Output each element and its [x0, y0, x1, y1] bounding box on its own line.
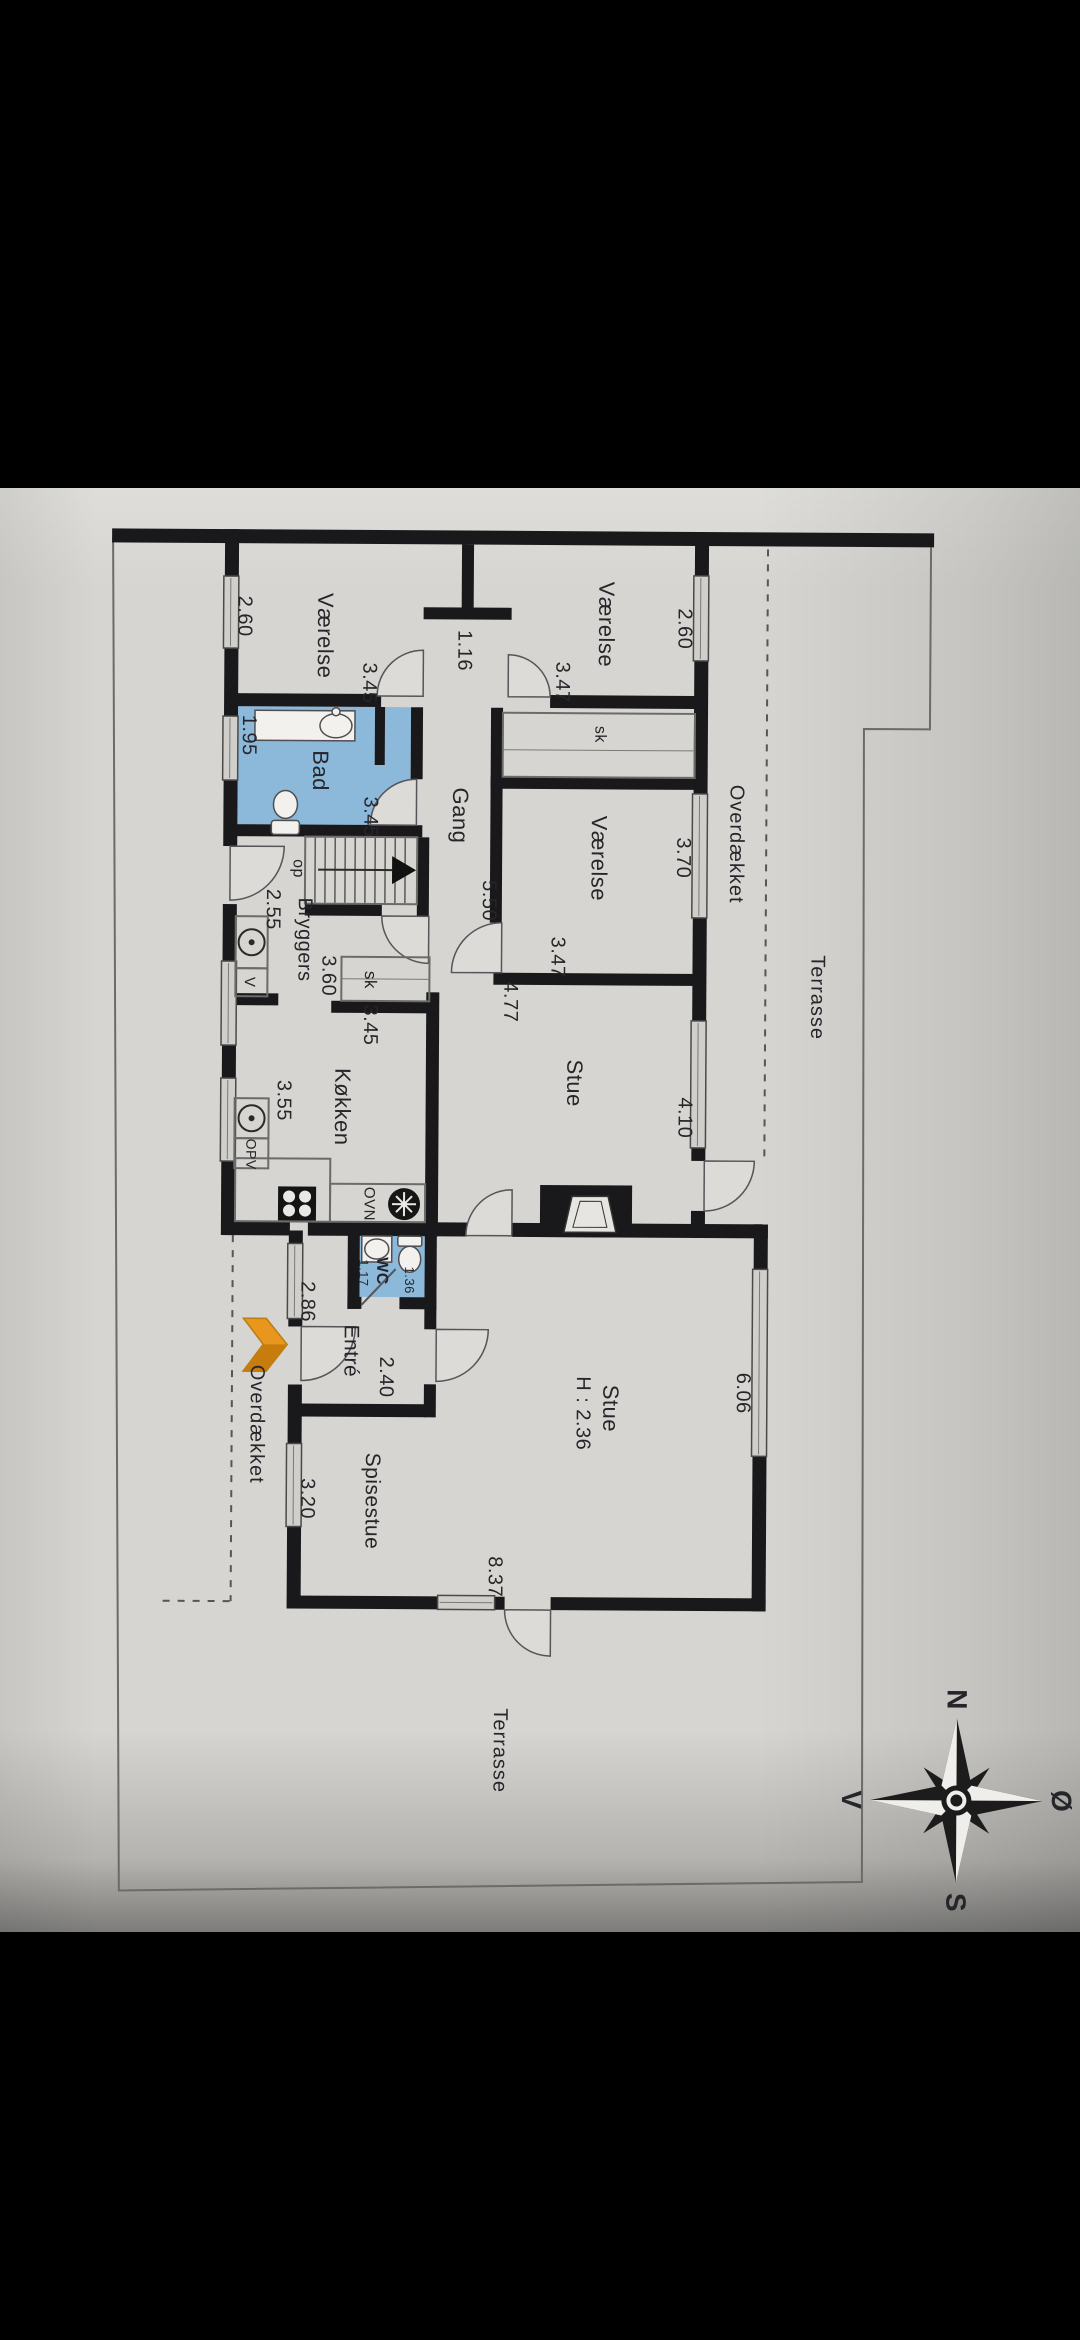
- dim-label: 6.06: [732, 1373, 754, 1414]
- door-terrasse: [504, 1610, 550, 1656]
- room-label-bryggers: Bryggers: [293, 897, 316, 981]
- floorplan-tilt-wrapper: Værelse 2.60 3.45 1.16 Værelse 3.47 2.60…: [0, 485, 1080, 1936]
- dim-label: 3.47: [551, 662, 573, 703]
- bottom-letterbox-bar: [0, 1932, 1080, 2340]
- room-label-vaerelse-top-middle: Værelse: [594, 582, 620, 668]
- dim-label: 5.50: [478, 880, 500, 921]
- door-vaerelse-middle: [508, 655, 550, 697]
- wc-sink: [365, 1239, 389, 1259]
- dim-label: 2.60: [233, 596, 255, 637]
- door-stue-divider: [466, 1190, 512, 1236]
- area-label-overdaekket-east: Overdækket: [725, 785, 748, 904]
- room-label-koekken: Køkken: [330, 1068, 355, 1146]
- room-label-stue-lower: Stue: [598, 1385, 623, 1432]
- door-entre-stue: [436, 1329, 488, 1381]
- dim-label: 3.20: [296, 1478, 318, 1519]
- room-label-bad: Bad: [308, 750, 333, 791]
- dishwasher-label: OPV: [243, 1139, 259, 1170]
- room-height-label: H : 2.36: [572, 1376, 594, 1450]
- entrance-arrow-icon: [243, 1318, 287, 1371]
- stairs-up-label: op: [290, 859, 307, 878]
- door-east-terrasse: [704, 1161, 754, 1211]
- compass-east-label: Ø: [1046, 1790, 1077, 1812]
- door-vaerelse-left: [377, 650, 423, 696]
- closet-label: sk: [361, 971, 380, 989]
- dim-label: 2.86: [296, 1281, 318, 1322]
- compass-south-label: S: [940, 1893, 971, 1912]
- dim-label: 3.45: [359, 1004, 381, 1045]
- compass-west-label: V: [836, 1790, 867, 1809]
- dim-label: 2.60: [673, 608, 695, 649]
- bad-faucet: [332, 708, 340, 716]
- room-label-wc: WC: [373, 1257, 390, 1285]
- dim-label: 1.95: [238, 715, 260, 756]
- dim-label: 4.10: [673, 1097, 695, 1138]
- compass-rose-icon: [870, 1718, 1043, 1883]
- compass-north-label: N: [941, 1689, 972, 1710]
- door-vaerelse-mid-room: [451, 922, 501, 972]
- dim-label: 1.36: [402, 1267, 417, 1294]
- bad-toilet-bowl: [273, 790, 297, 818]
- dim-label: 2.40: [375, 1357, 397, 1398]
- floorplan-paper: Værelse 2.60 3.45 1.16 Værelse 3.47 2.60…: [0, 488, 1080, 1932]
- room-label-vaerelse-middle: Værelse: [586, 816, 612, 902]
- top-letterbox-bar: [0, 0, 1080, 488]
- dim-label: 3.45: [359, 796, 381, 837]
- area-label-terrasse-south: Terrasse: [488, 1708, 511, 1793]
- dim-label: 3.55: [273, 1080, 295, 1121]
- dim-label: 3.47: [546, 937, 568, 978]
- dim-label: 3.70: [672, 837, 694, 878]
- dim-label: 1.17: [356, 1259, 371, 1286]
- staircase: [305, 837, 417, 905]
- dim-label: 3.45: [358, 662, 380, 703]
- stairs-direction-arrow: [392, 856, 416, 884]
- room-label-vaerelse-top-left: Værelse: [313, 593, 339, 679]
- area-label-overdaekket-west: Overdækket: [245, 1365, 268, 1484]
- oven-label: OVN: [360, 1187, 377, 1221]
- dim-label: 1.16: [453, 630, 475, 671]
- washer-label: V: [241, 977, 258, 988]
- room-label-stue-upper: Stue: [562, 1060, 587, 1107]
- dim-label: 3.60: [317, 955, 339, 996]
- dim-label: 8.37: [484, 1556, 506, 1597]
- bad-sink: [320, 714, 352, 738]
- extractor-fan: [388, 1188, 420, 1220]
- phone-screenshot: Værelse 2.60 3.45 1.16 Værelse 3.47 2.60…: [0, 0, 1080, 2340]
- room-label-entre: Entré: [339, 1324, 362, 1377]
- area-label-terrasse-east: Terrasse: [806, 955, 829, 1040]
- bad-toilet-tank: [271, 820, 299, 834]
- wc-toilet-tank: [398, 1236, 422, 1246]
- closet-label: sk: [591, 726, 608, 744]
- room-label-spisestue: Spisestue: [360, 1453, 384, 1550]
- fireplace: [564, 1196, 616, 1232]
- room-label-gang: Gang: [448, 788, 473, 844]
- dim-label: 2.55: [262, 889, 284, 930]
- dim-label: 4.77: [499, 981, 521, 1022]
- floorplan-drawing: Værelse 2.60 3.45 1.16 Værelse 3.47 2.60…: [0, 485, 1080, 1936]
- stove: [278, 1186, 316, 1220]
